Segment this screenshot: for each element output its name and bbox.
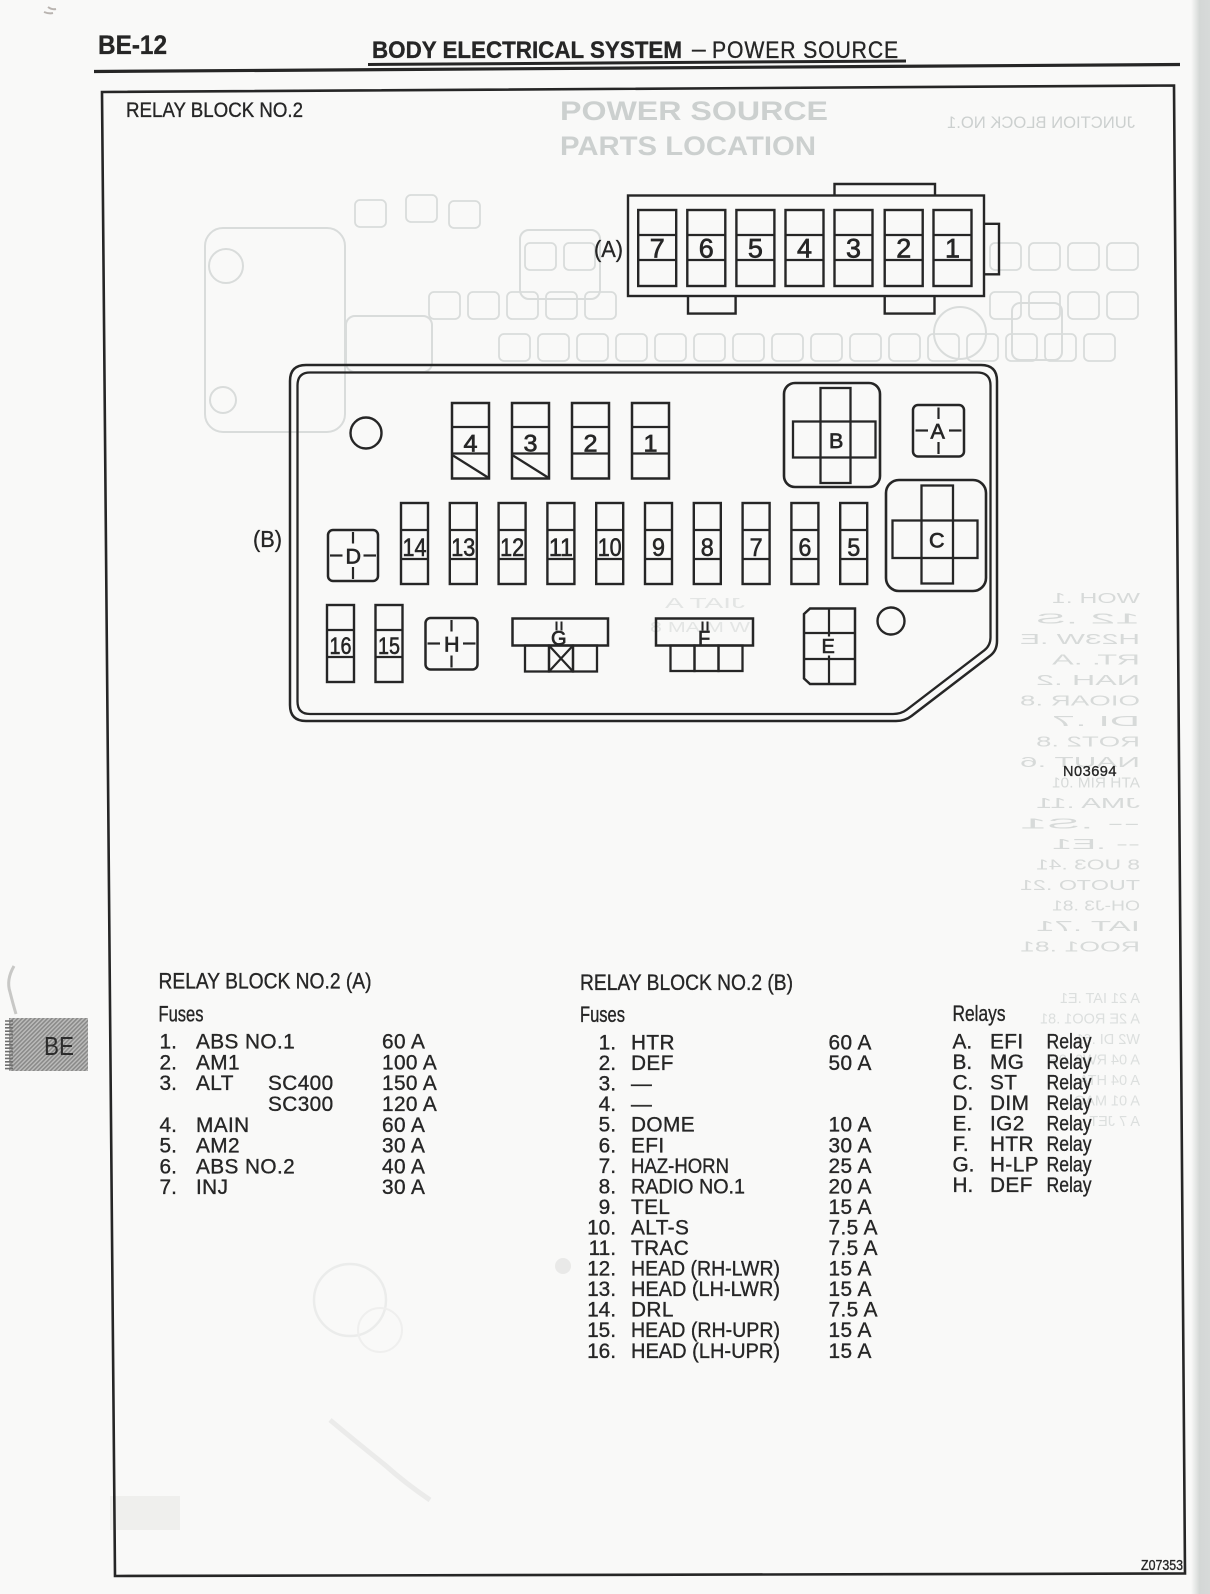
svg-text:15 A: 15 A	[829, 1196, 872, 1219]
svg-text:DEF: DEF	[631, 1052, 674, 1075]
svg-text:(B): (B)	[253, 526, 282, 552]
svg-text:RELAY BLOCK NO.2 (B): RELAY BLOCK NO.2 (B)	[580, 970, 793, 995]
svg-text:6.: 6.	[599, 1134, 616, 1157]
svg-text:HEAD (LH-UPR): HEAD (LH-UPR)	[631, 1340, 780, 1363]
svg-text:A 7 JET: A 7 JET	[1089, 1114, 1140, 1130]
svg-text:15: 15	[378, 633, 400, 660]
svg-text:—: —	[631, 1073, 652, 1096]
svg-text:-- .S1: -- .S1	[1020, 817, 1140, 833]
svg-text:11: 11	[549, 534, 573, 562]
svg-text:6: 6	[699, 234, 714, 264]
svg-text:JMA .11: JMA .11	[1036, 796, 1140, 812]
svg-text:8.: 8.	[599, 1175, 616, 1198]
svg-text:20 A: 20 A	[829, 1175, 872, 1198]
svg-text:NAH .2: NAH .2	[1036, 673, 1140, 689]
svg-text:SC300: SC300	[268, 1093, 334, 1116]
svg-text:OH-J3 .81: OH-J3 .81	[1052, 899, 1140, 915]
svg-text:(A): (A)	[594, 236, 623, 262]
svg-text:7.: 7.	[160, 1176, 177, 1199]
svg-text:H23W .E: H23W .E	[1019, 632, 1140, 648]
svg-text:RELAY BLOCK NO.2: RELAY BLOCK NO.2	[126, 98, 303, 122]
svg-text:15 A: 15 A	[829, 1278, 872, 1301]
svg-text:2.: 2.	[160, 1051, 177, 1074]
svg-text:30 A: 30 A	[829, 1134, 872, 1157]
svg-text:6.: 6.	[160, 1155, 177, 1178]
svg-text:16.: 16.	[587, 1340, 616, 1363]
svg-text:2: 2	[896, 234, 911, 264]
svg-text:SC400: SC400	[268, 1072, 334, 1095]
svg-text:ABS NO.2: ABS NO.2	[196, 1155, 295, 1178]
svg-text:MAIN: MAIN	[196, 1114, 250, 1137]
svg-text:5: 5	[748, 234, 763, 264]
svg-text:H: H	[444, 633, 460, 657]
svg-text:F: F	[698, 628, 710, 650]
svg-text:HEAD (LH-LWR): HEAD (LH-LWR)	[631, 1278, 780, 1301]
svg-text:Fuses: Fuses	[159, 1001, 204, 1026]
svg-text:AM2: AM2	[196, 1135, 240, 1158]
svg-text:POWER SOURCE: POWER SOURCE	[560, 96, 828, 126]
svg-text:JUNCTION BLOCK NO.1: JUNCTION BLOCK NO.1	[947, 114, 1135, 132]
svg-text:INJ: INJ	[196, 1176, 228, 1199]
svg-text:1: 1	[644, 431, 658, 458]
svg-text:ALT: ALT	[196, 1072, 234, 1095]
svg-text:50 A: 50 A	[829, 1052, 872, 1075]
svg-text:6: 6	[798, 534, 811, 562]
svg-text:40 A: 40 A	[382, 1155, 425, 1178]
svg-text:A 21 IAT .E1: A 21 IAT .E1	[1060, 991, 1140, 1007]
svg-text:HTR: HTR	[631, 1032, 675, 1055]
svg-text:IAT .71: IAT .71	[1036, 919, 1140, 935]
svg-text:RELAY BLOCK NO.2 (A): RELAY BLOCK NO.2 (A)	[159, 969, 372, 994]
svg-text:HAZ-HORN: HAZ-HORN	[631, 1155, 729, 1178]
svg-text:16: 16	[330, 633, 352, 660]
svg-text:15.: 15.	[587, 1319, 616, 1342]
svg-text:E: E	[822, 636, 835, 658]
svg-text:3: 3	[524, 431, 538, 458]
svg-text:7.5 A: 7.5 A	[829, 1216, 878, 1239]
svg-text:Relays: Relays	[953, 1001, 1006, 1026]
svg-text:C: C	[929, 529, 945, 553]
svg-text:15 A: 15 A	[829, 1258, 872, 1281]
svg-text:4.: 4.	[160, 1114, 177, 1137]
svg-text:TEL: TEL	[631, 1196, 670, 1219]
svg-text:7.5 A: 7.5 A	[829, 1237, 878, 1260]
svg-text:TUOTO .21: TUOTO .21	[1020, 878, 1140, 894]
svg-text:8 UO3 .41: 8 UO3 .41	[1036, 858, 1140, 874]
svg-text:3.: 3.	[599, 1073, 616, 1096]
svg-text:H.: H.	[953, 1174, 974, 1197]
svg-text:14.: 14.	[587, 1299, 616, 1322]
svg-text:1.: 1.	[160, 1031, 177, 1054]
svg-text:DRL: DRL	[631, 1299, 674, 1322]
svg-text:PARTS LOCATION: PARTS LOCATION	[560, 131, 816, 161]
svg-text:Fuses: Fuses	[580, 1002, 625, 1027]
svg-text:ROT2 .8: ROT2 .8	[1036, 735, 1140, 751]
svg-text:10: 10	[598, 534, 622, 562]
svg-text:BE-12: BE-12	[98, 30, 167, 60]
svg-text:11.: 11.	[589, 1237, 616, 1260]
svg-text:1.: 1.	[599, 1032, 616, 1055]
svg-text:5.: 5.	[160, 1135, 177, 1158]
svg-text:10 A: 10 A	[829, 1114, 872, 1137]
svg-text:A 2E ROO1 .81: A 2E ROO1 .81	[1040, 1012, 1140, 1028]
svg-text:120 A: 120 A	[382, 1093, 437, 1116]
svg-text:12: 12	[500, 534, 524, 562]
svg-text:OIOAR .8: OIOAR .8	[1020, 694, 1140, 710]
svg-text:12.: 12.	[587, 1258, 616, 1281]
svg-text:30 A: 30 A	[382, 1176, 425, 1199]
svg-text:1: 1	[945, 234, 960, 264]
svg-text:-- .E1: -- .E1	[1052, 837, 1140, 853]
svg-text:60 A: 60 A	[382, 1114, 425, 1137]
svg-text:–: –	[692, 36, 706, 63]
svg-text:13.: 13.	[587, 1278, 616, 1301]
svg-text:ABS NO.1: ABS NO.1	[196, 1031, 295, 1054]
svg-text:DEF: DEF	[990, 1174, 1033, 1197]
svg-text:3.: 3.	[160, 1072, 177, 1095]
svg-text:4: 4	[464, 431, 478, 458]
svg-text:EFI: EFI	[631, 1134, 665, 1157]
svg-text:4.: 4.	[599, 1093, 616, 1116]
svg-text:9: 9	[652, 534, 665, 562]
svg-text:7: 7	[750, 534, 763, 562]
svg-text:25 A: 25 A	[829, 1155, 872, 1178]
svg-text:DI .7: DI .7	[1052, 714, 1140, 730]
svg-text:TRAC: TRAC	[631, 1237, 689, 1260]
svg-text:2: 2	[584, 431, 598, 458]
svg-text:ALT-S: ALT-S	[631, 1216, 689, 1239]
svg-text:150 A: 150 A	[382, 1072, 437, 1095]
svg-text:7.: 7.	[599, 1155, 616, 1178]
svg-text:8: 8	[701, 534, 714, 562]
svg-text:12 .S: 12 .S	[1036, 612, 1140, 628]
svg-text:13: 13	[451, 534, 475, 562]
svg-text:WOH .1: WOH .1	[1052, 591, 1140, 607]
svg-text:Z07353: Z07353	[1141, 1558, 1183, 1574]
svg-text:JIAT A: JIAT A	[665, 595, 745, 612]
svg-text:3: 3	[846, 234, 861, 264]
svg-text:ROO1 .81: ROO1 .81	[1020, 940, 1140, 956]
svg-text:AM1: AM1	[196, 1051, 240, 1074]
svg-text:A: A	[931, 420, 946, 444]
svg-text:HEAD (RH-UPR): HEAD (RH-UPR)	[631, 1319, 780, 1342]
svg-text:5.: 5.	[599, 1114, 616, 1137]
svg-text:15 A: 15 A	[829, 1319, 872, 1342]
svg-text:BE: BE	[44, 1031, 74, 1061]
svg-text:7: 7	[650, 234, 665, 264]
svg-text:N03694: N03694	[1063, 763, 1117, 780]
svg-text:D: D	[346, 545, 362, 569]
svg-text:DOME: DOME	[631, 1114, 695, 1137]
svg-text:BODY ELECTRICAL SYSTEM: BODY ELECTRICAL SYSTEM	[372, 37, 682, 64]
svg-text:9.: 9.	[599, 1196, 616, 1219]
svg-text:100 A: 100 A	[382, 1051, 437, 1074]
svg-text:2.: 2.	[599, 1052, 616, 1075]
svg-text:15 A: 15 A	[829, 1340, 872, 1363]
svg-text:4: 4	[797, 234, 812, 264]
svg-text:—: —	[631, 1093, 652, 1116]
svg-text:14: 14	[403, 534, 427, 562]
svg-text:RT. .A: RT. .A	[1051, 653, 1140, 669]
svg-text:30 A: 30 A	[382, 1135, 425, 1158]
svg-text:B: B	[829, 429, 843, 453]
svg-text:Relay: Relay	[1047, 1174, 1093, 1197]
svg-text:10.: 10.	[587, 1216, 616, 1239]
svg-text:RADIO NO.1: RADIO NO.1	[631, 1175, 745, 1198]
svg-text:G: G	[551, 628, 567, 650]
svg-text:7.5 A: 7.5 A	[829, 1299, 878, 1322]
svg-text:60 A: 60 A	[829, 1032, 872, 1055]
svg-text:HEAD (RH-LWR): HEAD (RH-LWR)	[631, 1258, 780, 1281]
svg-text:5: 5	[847, 534, 860, 562]
svg-text:60 A: 60 A	[382, 1031, 425, 1054]
